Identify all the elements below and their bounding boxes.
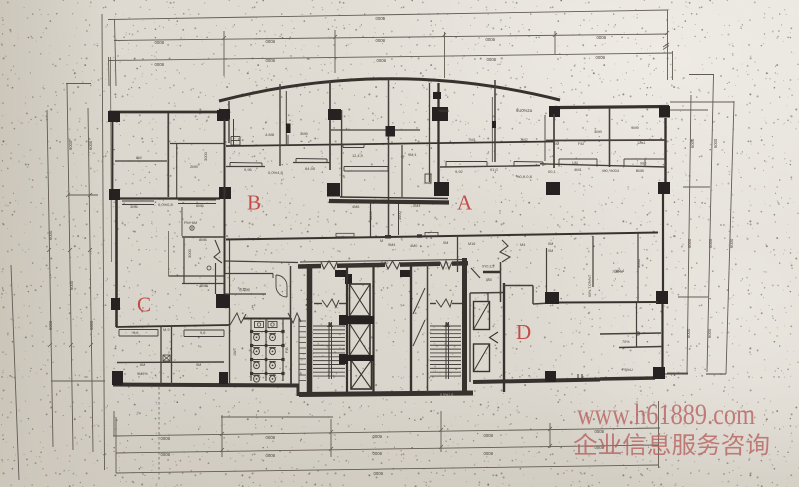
svg-text:P5%U: P5%U: [622, 368, 633, 372]
svg-text:8000: 8000: [375, 38, 385, 43]
svg-text:%0,%004: %0,%004: [602, 168, 620, 173]
svg-text:6000: 6000: [69, 280, 74, 290]
svg-text:3M6: 3M6: [130, 204, 139, 209]
svg-text:00,1: 00,1: [548, 169, 557, 174]
svg-text:www.h61889.com: www.h61889.com: [577, 398, 755, 431]
svg-text:%0,9.0,8: %0,9.0,8: [516, 174, 533, 179]
svg-text:6000: 6000: [88, 140, 93, 150]
svg-text:布草间: 布草间: [239, 287, 250, 292]
svg-text:0M: 0M: [443, 241, 448, 245]
svg-text:9U0%2a: 9U0%2a: [516, 108, 533, 113]
svg-text:%M06: %M06: [438, 108, 450, 113]
svg-text:8000: 8000: [372, 451, 382, 456]
svg-text:01,0: 01,0: [490, 167, 499, 172]
svg-text:6M6: 6M6: [196, 203, 205, 208]
svg-text:6000: 6000: [68, 140, 73, 150]
svg-text:3000: 3000: [368, 211, 373, 220]
svg-text:9,6: 9,6: [133, 330, 138, 335]
svg-text:6000: 6000: [687, 238, 692, 248]
svg-text:0,5%1.0: 0,5%1.0: [440, 393, 453, 397]
svg-text:3000: 3000: [187, 248, 192, 258]
svg-text:0,0%4,8: 0,0%4,8: [268, 170, 283, 175]
svg-text:8000: 8000: [265, 453, 275, 458]
svg-text:0,60: 0,60: [381, 261, 388, 265]
svg-text:A: A: [457, 191, 473, 215]
svg-text:6000: 6000: [89, 320, 94, 330]
svg-text:3000: 3000: [397, 211, 402, 220]
svg-text:6000: 6000: [686, 328, 691, 338]
svg-text:9,6: 9,6: [200, 330, 205, 335]
svg-text:6000: 6000: [690, 138, 695, 148]
svg-text:M16: M16: [468, 242, 475, 246]
svg-text:8000: 8000: [265, 435, 275, 440]
svg-text:1WT: 1WT: [233, 347, 237, 356]
svg-text:8000: 8000: [154, 62, 164, 67]
svg-text:9M,1: 9M,1: [408, 152, 417, 157]
svg-text:8M8: 8M8: [636, 168, 645, 173]
svg-text:4M6: 4M6: [352, 205, 359, 209]
svg-text:4-M8: 4-M8: [265, 132, 275, 137]
svg-text:0M: 0M: [548, 242, 553, 246]
svg-text:7M1: 7M1: [468, 137, 477, 142]
svg-text:8000: 8000: [160, 452, 170, 457]
svg-text:8M6: 8M6: [199, 237, 208, 242]
svg-text:U&I: U&I: [572, 161, 578, 165]
svg-text:70%: 70%: [622, 340, 630, 344]
svg-text:8000: 8000: [154, 40, 164, 45]
svg-text:PM+6M: PM+6M: [184, 221, 197, 225]
svg-text:6000: 6000: [713, 138, 718, 148]
svg-text:12,4,9: 12,4,9: [352, 153, 363, 158]
svg-text:6000: 6000: [48, 230, 53, 240]
svg-text:6000: 6000: [708, 238, 713, 248]
svg-text:D: D: [516, 320, 531, 344]
svg-text:0M: 0M: [548, 249, 553, 253]
svg-text:P,B: P,B: [285, 347, 289, 353]
svg-text:0,0%0,8: 0,0%0,8: [158, 202, 173, 207]
svg-text:6M: 6M: [140, 363, 145, 367]
svg-text:0M4: 0M4: [413, 204, 420, 208]
svg-text:4M1: 4M1: [574, 167, 583, 172]
svg-text:9,96: 9,96: [244, 167, 253, 172]
svg-text:7M0%: 7M0%: [612, 270, 623, 274]
svg-text:8000: 8000: [373, 471, 383, 476]
svg-text:3000: 3000: [636, 258, 641, 268]
svg-text:6M: 6M: [136, 155, 142, 160]
svg-text:8000: 8000: [595, 55, 605, 60]
svg-text:M: M: [380, 239, 383, 243]
svg-text:8000: 8000: [596, 35, 606, 40]
svg-text:6000: 6000: [729, 238, 734, 248]
svg-text:GM: GM: [553, 142, 559, 146]
svg-text:9M9: 9M9: [631, 125, 640, 130]
svg-text:8000: 8000: [483, 433, 493, 438]
svg-text:040: 040: [486, 278, 492, 282]
svg-text:M,9: M,9: [163, 327, 170, 332]
svg-text:9,92: 9,92: [455, 169, 464, 174]
svg-text:8000: 8000: [372, 434, 382, 439]
svg-text:6000: 6000: [48, 320, 53, 330]
svg-text:M4: M4: [520, 243, 525, 247]
svg-text:9&0: 9&0: [640, 162, 646, 166]
svg-text:8M6: 8M6: [200, 283, 209, 288]
svg-text:7M2: 7M2: [520, 137, 529, 142]
svg-text:64,95: 64,95: [305, 166, 316, 171]
svg-text:2M9: 2M9: [190, 164, 199, 169]
svg-text:C: C: [137, 293, 151, 317]
svg-text:6000: 6000: [707, 328, 712, 338]
svg-text:9M: 9M: [196, 363, 201, 367]
svg-text:B: B: [247, 191, 261, 215]
svg-text:8000: 8000: [485, 37, 495, 42]
svg-text:4M0: 4M0: [410, 244, 417, 248]
svg-text:8000: 8000: [160, 436, 170, 441]
svg-text:9M9%: 9M9%: [137, 372, 148, 376]
svg-text:企业信息服务咨询: 企业信息服务咨询: [573, 432, 770, 459]
svg-text:3M9: 3M9: [594, 129, 603, 134]
svg-text:8000: 8000: [483, 451, 493, 456]
svg-text:8000: 8000: [265, 39, 275, 44]
svg-text:8000: 8000: [486, 57, 496, 62]
svg-text:00%,T,C%%T: 00%,T,C%%T: [588, 274, 592, 297]
svg-text:8000: 8000: [265, 58, 275, 63]
svg-text:8000: 8000: [376, 58, 386, 63]
svg-text:12a1: 12a1: [637, 141, 645, 145]
svg-text:P&I: P&I: [578, 142, 584, 146]
svg-text:9Y0.3,5: 9Y0.3,5: [482, 265, 494, 269]
svg-text:3M9: 3M9: [300, 131, 309, 136]
svg-text:3000: 3000: [203, 151, 208, 161]
svg-text:9M4: 9M4: [388, 243, 395, 247]
svg-text:8000: 8000: [375, 16, 385, 21]
